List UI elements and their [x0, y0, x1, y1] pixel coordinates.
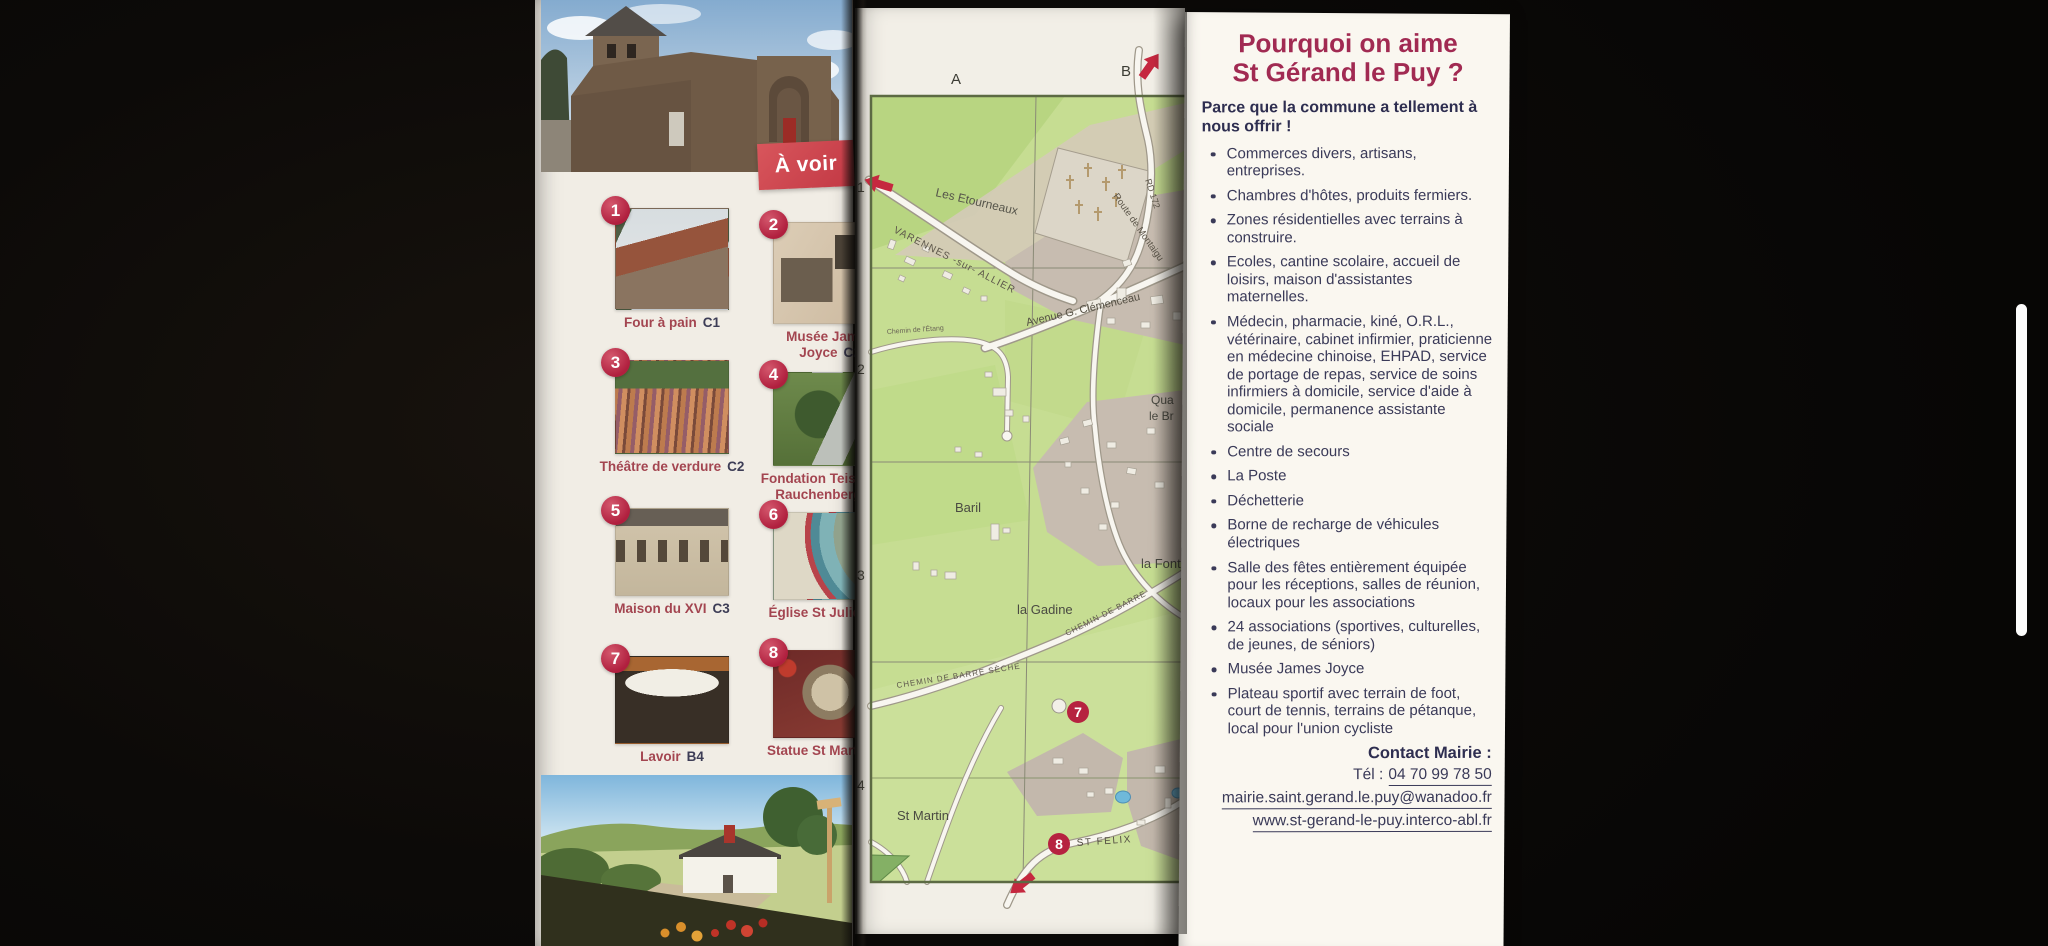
item-number-badge: 5 [601, 496, 630, 525]
svg-text:8: 8 [1055, 836, 1063, 852]
map-place-label-gadine: la Gadine [1017, 602, 1073, 617]
countryside-photo-art [541, 775, 852, 946]
map-marker-8: 8 [1048, 833, 1070, 855]
panel-sights: À voir 1 Four à painC1 2 Musée James Joy… [535, 0, 853, 946]
item-photo [615, 656, 729, 744]
amenity-item: Plateau sportif avec terrain de foot, co… [1203, 685, 1496, 738]
item-caption: Maison du XVIC3 [599, 601, 745, 617]
page-title-line2: St Gérand le Puy ? [1201, 58, 1494, 88]
amenity-item: Centre de secours [1202, 443, 1495, 461]
item-number-badge: 2 [759, 210, 788, 239]
sight-item-5: 5 Maison du XVIC3 [599, 508, 745, 617]
item-number-badge: 1 [601, 196, 630, 225]
item-number-badge: 8 [759, 638, 788, 667]
amenity-item: Déchetterie [1202, 492, 1495, 510]
map-grid-label-a: A [951, 71, 961, 88]
amenity-item: Salle des fêtes entièrement équipée pour… [1202, 558, 1495, 611]
contact-phone-label: Tél : [1353, 767, 1383, 784]
amenity-item: La Poste [1202, 467, 1495, 485]
map-marker-7: 7 [1067, 701, 1089, 723]
item-caption: Théâtre de verdureC2 [599, 459, 745, 475]
photo-background: À voir 1 Four à painC1 2 Musée James Joy… [0, 0, 2048, 946]
item-caption: Four à painC1 [599, 315, 745, 331]
item-caption: LavoirB4 [599, 749, 745, 765]
contact-website-line: www.st-gerand-le-puy.interco-abl.fr [1203, 812, 1492, 833]
item-photo [615, 508, 729, 596]
fold-shadow-right [1153, 8, 1187, 934]
item-photo [615, 208, 729, 310]
panel-why-we-love: Pourquoi on aime St Gérand le Puy ? Parc… [1178, 12, 1510, 946]
map-grid-label-b: B [1121, 63, 1131, 80]
sight-item-3: 3 Théâtre de verdureC2 [599, 360, 745, 475]
svg-text:7: 7 [1074, 704, 1082, 720]
item-photo [615, 360, 729, 454]
amenity-item: Borne de recharge de véhicules électriqu… [1202, 516, 1495, 552]
page-title-line1: Pourquoi on aime [1201, 29, 1494, 59]
map-place-label-baril: Baril [955, 500, 981, 515]
contact-website: www.st-gerand-le-puy.interco-abl.fr [1253, 812, 1492, 832]
item-number-badge: 6 [759, 500, 788, 529]
contact-email-line: mairie.saint.gerand.le.puy@wanadoo.fr [1203, 789, 1492, 810]
amenity-item: Médecin, pharmacie, kiné, O.R.L., vétéri… [1202, 313, 1495, 436]
scroll-indicator[interactable] [2016, 304, 2027, 636]
sight-item-1: 1 Four à painC1 [599, 208, 745, 331]
map-place-label-st-martin: St Martin [897, 808, 949, 823]
amenity-item: Ecoles, cantine scolaire, accueil de loi… [1202, 253, 1495, 306]
item-number-badge: 3 [601, 348, 630, 377]
amenity-item: Zones résidentielles avec terrains à con… [1202, 211, 1495, 247]
contact-email: mairie.saint.gerand.le.puy@wanadoo.fr [1222, 789, 1492, 809]
fold-shadow-center [841, 0, 867, 946]
town-map: A B 1 2 3 4 Les Etourneaux Baril la Gadi… [855, 0, 1185, 946]
amenity-item: Musée James Joyce [1203, 660, 1496, 678]
countryside-photo [541, 775, 852, 946]
amenity-item: 24 associations (sportives, culturelles,… [1202, 618, 1495, 654]
amenity-item: Chambres d'hôtes, produits fermiers. [1202, 187, 1495, 205]
amenity-item: Commerces divers, artisans, entreprises. [1202, 144, 1495, 180]
contact-phone-number: 04 70 99 78 50 [1388, 766, 1491, 786]
contact-block: Contact Mairie : Tél :04 70 99 78 50 mai… [1203, 744, 1496, 833]
item-number-badge: 7 [601, 644, 630, 673]
contact-heading: Contact Mairie : [1203, 744, 1492, 764]
item-number-badge: 4 [759, 360, 788, 389]
brochure: À voir 1 Four à painC1 2 Musée James Joy… [535, 0, 1510, 946]
panel-why-content: Pourquoi on aime St Gérand le Puy ? Parc… [1181, 13, 1507, 833]
contact-phone: Tél :04 70 99 78 50 [1203, 766, 1492, 787]
amenity-list: Commerces divers, artisans, entreprises.… [1202, 144, 1496, 737]
page-title: Pourquoi on aime St Gérand le Puy ? [1201, 29, 1494, 88]
sight-item-7: 7 LavoirB4 [599, 656, 745, 765]
a-voir-label: À voir [774, 152, 838, 179]
intro-text: Parce que la commune a tellement à nous … [1202, 98, 1495, 137]
